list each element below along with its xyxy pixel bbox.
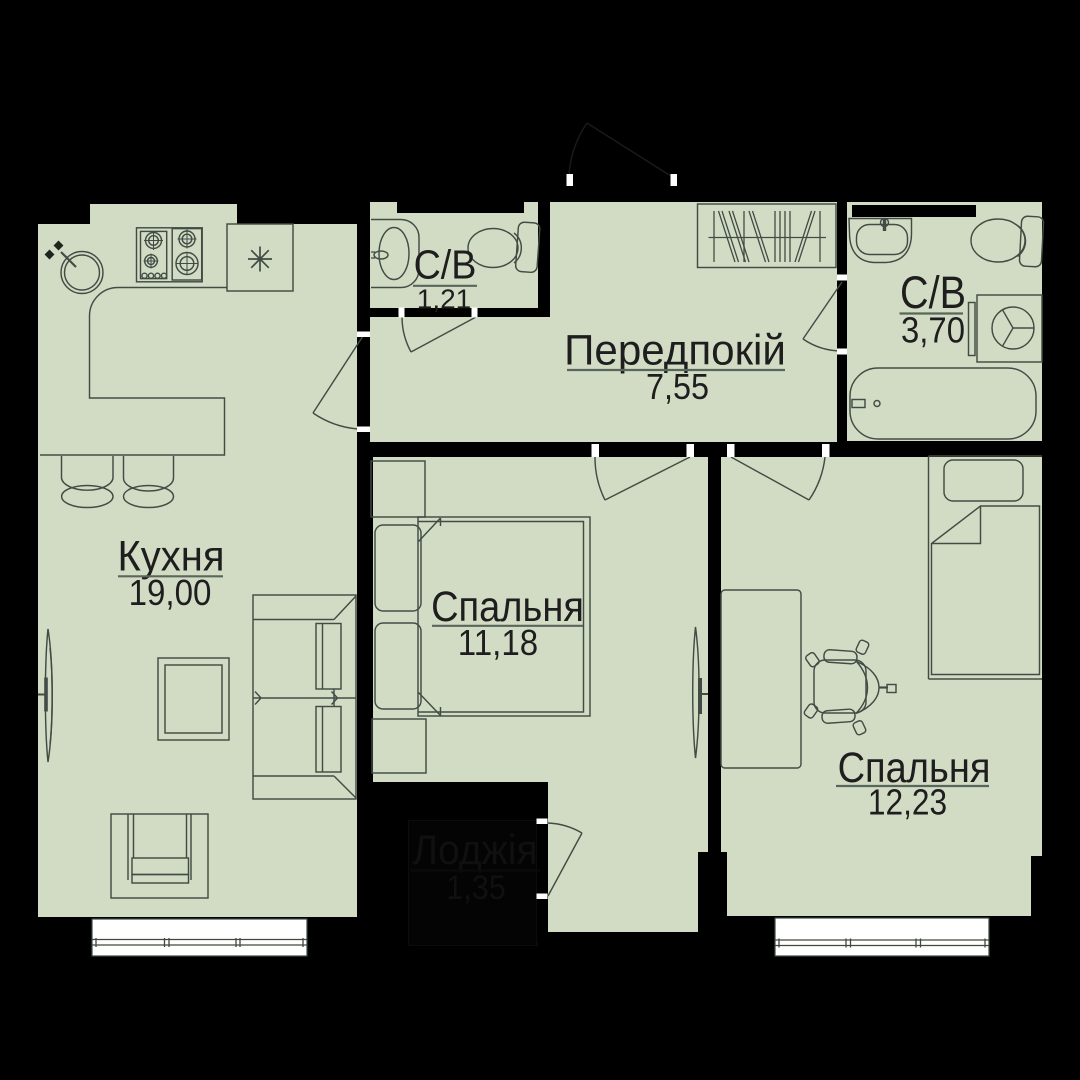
svg-text:1,21: 1,21	[417, 284, 472, 315]
svg-text:7,55: 7,55	[646, 367, 709, 407]
svg-text:Лоджія: Лоджія	[412, 826, 537, 874]
svg-text:1,35: 1,35	[446, 869, 506, 907]
svg-text:С/В: С/В	[414, 242, 477, 288]
svg-text:12,23: 12,23	[868, 783, 947, 823]
svg-text:Кухня: Кухня	[117, 531, 224, 580]
svg-text:19,00: 19,00	[129, 574, 212, 614]
svg-text:3,70: 3,70	[901, 311, 965, 351]
svg-text:11,18: 11,18	[458, 624, 538, 664]
